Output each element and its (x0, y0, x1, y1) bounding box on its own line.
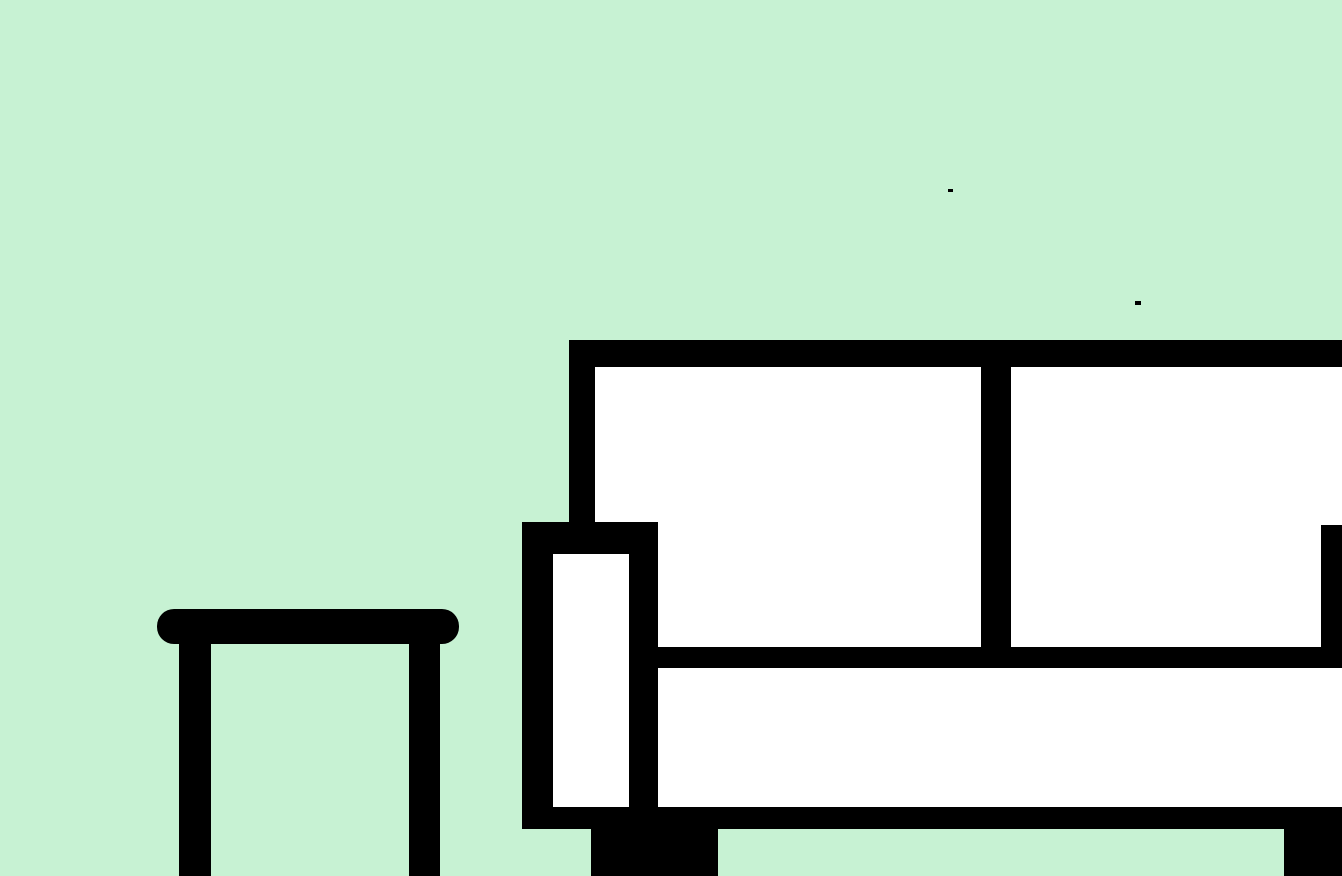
table-top (157, 609, 459, 644)
sofa-armrest-right (1321, 525, 1342, 668)
sofa-back-cushion-right (1011, 367, 1342, 647)
sofa-right-leg (1284, 829, 1342, 876)
sofa-front-leg (591, 829, 718, 876)
sofa-armrest-left-inner (553, 554, 629, 807)
sofa-base-rail (522, 807, 1342, 829)
scene-canvas (0, 0, 1342, 876)
table-left-leg (179, 640, 211, 876)
sofa-seat (657, 668, 1342, 807)
paint-speck-1 (948, 189, 953, 192)
paint-speck-2 (1135, 301, 1141, 305)
table-right-leg (409, 640, 440, 876)
